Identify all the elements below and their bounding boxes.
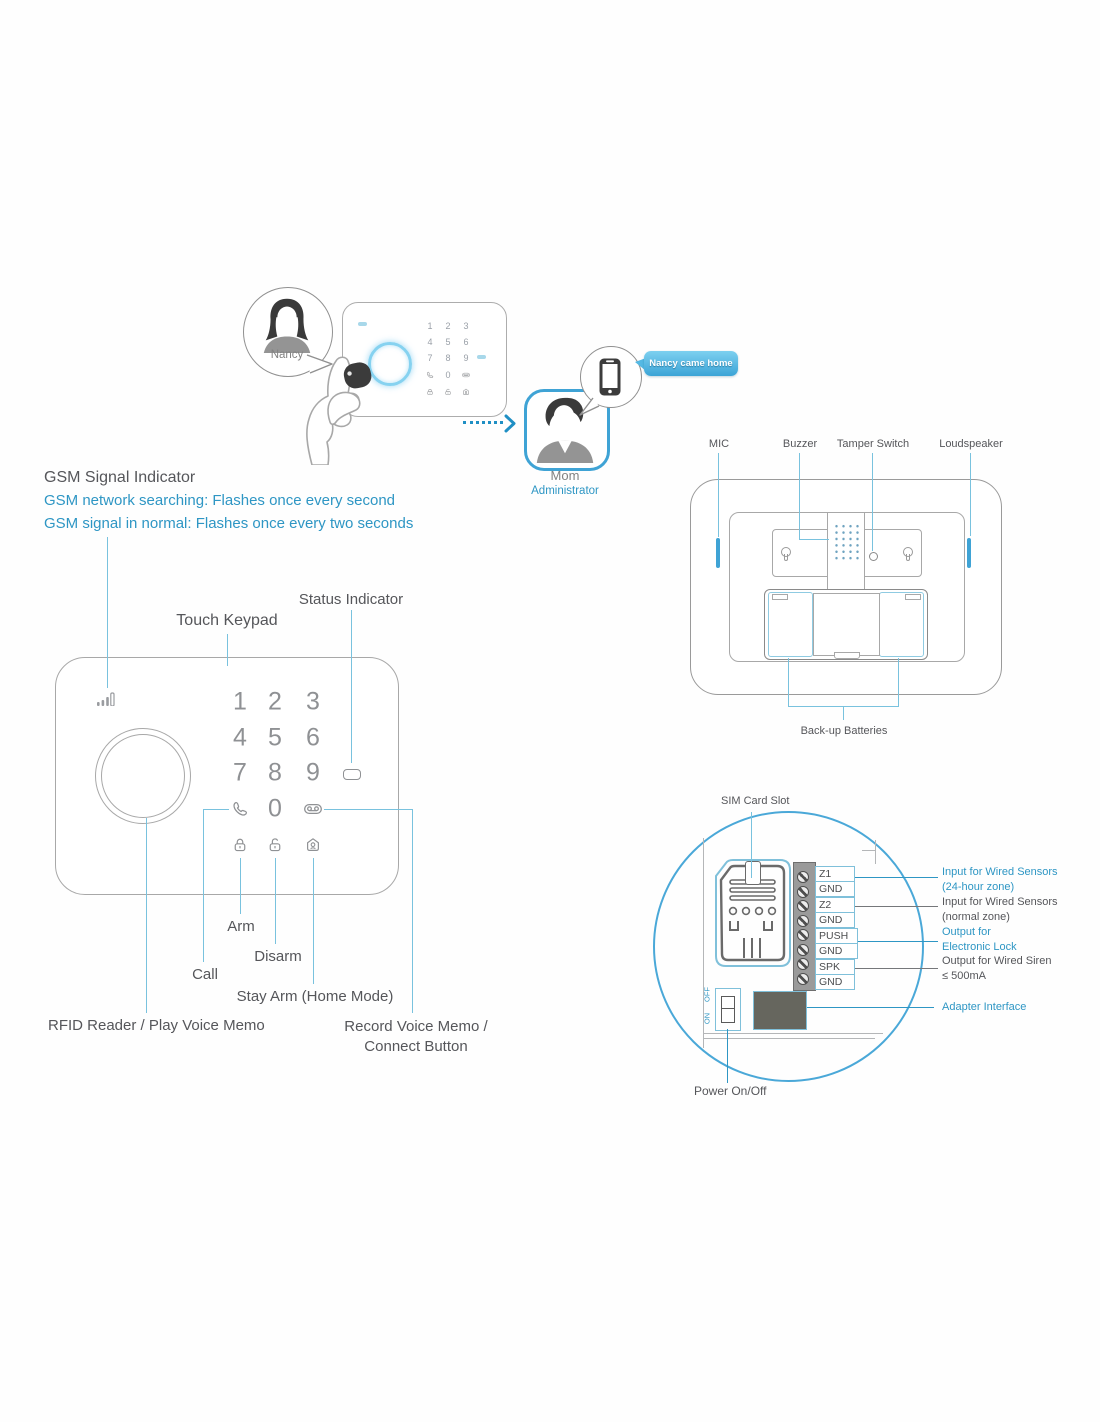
battery-left [768, 592, 813, 657]
annotation-lock-line2: Electronic Lock [942, 941, 1017, 953]
mini-signal-dash [358, 322, 367, 326]
touch-keypad-label: Touch Keypad [176, 612, 277, 630]
stay-key-icon [304, 836, 323, 855]
terminal-z2: Z2 [816, 898, 854, 912]
gsm-normal-note: GSM signal in normal: Flashes once every… [44, 515, 413, 532]
annotation-siren-line1: Output for Wired Siren [942, 955, 1051, 967]
disarm-label: Disarm [254, 948, 302, 965]
arm-key-icon [231, 836, 250, 855]
status-indicator-label: Status Indicator [299, 591, 403, 608]
mom-label: Mom [551, 468, 580, 483]
terminal-screw-5 [797, 929, 809, 941]
battery-center-cover [813, 593, 880, 656]
z2-annotation-line [855, 906, 938, 907]
mini-key-9: 9 [463, 353, 468, 363]
terminal-gnd1: GND [816, 881, 854, 896]
voicemail-key-icon [303, 799, 324, 820]
tamper-connector-line [872, 453, 873, 551]
touch-keypad-connector-line [227, 634, 228, 666]
smartphone-icon [598, 357, 622, 397]
mini-key-7: 7 [427, 353, 432, 363]
arrow-chevron-icon [504, 414, 517, 433]
key-8: 8 [268, 759, 282, 788]
annotation-siren-line2: ≤ 500mA [942, 970, 986, 982]
hand-illustration [290, 330, 395, 465]
record-label-line2: Connect Button [344, 1037, 487, 1057]
buzzer-holes [833, 523, 860, 560]
terminal-push: PUSH [816, 929, 857, 943]
key-5: 5 [268, 724, 282, 753]
terminal-screw-4 [797, 915, 809, 927]
pcb-edge-right-top [875, 840, 876, 864]
sim-connector-line [751, 812, 752, 878]
mini-arm-lock-icon [426, 388, 435, 397]
mini-key-1: 1 [427, 321, 432, 331]
gsm-signal-icon [97, 692, 119, 706]
mini-key-3: 3 [463, 321, 468, 331]
status-led [343, 769, 361, 780]
terminal-screw-7 [797, 958, 809, 970]
annotation-normal-line1: Input for Wired Sensors [942, 896, 1058, 908]
terminal-screw-8 [797, 973, 809, 985]
call-key-icon [230, 799, 250, 819]
mini-status-dash [477, 355, 486, 359]
annotation-lock-line1: Output for [942, 926, 991, 938]
battery-bracket-right [898, 658, 899, 706]
mic-label: MIC [709, 438, 729, 450]
mini-key-2: 2 [445, 321, 450, 331]
mini-key-5: 5 [445, 337, 450, 347]
mini-key-8: 8 [445, 353, 450, 363]
tamper-switch-dot [869, 552, 878, 561]
loudspeaker-label: Loudspeaker [939, 438, 1003, 450]
arm-label: Arm [227, 918, 255, 935]
rfid-reader-inner-ring [101, 734, 185, 818]
mic-slot [716, 538, 720, 568]
phone-bubble-tail [578, 396, 602, 418]
switch-off-label: OFF [703, 985, 712, 1005]
battery-latch [834, 652, 860, 659]
adapter-interface-block [753, 991, 807, 1030]
mini-call-icon [426, 371, 435, 380]
rfid-reader-label: RFID Reader / Play Voice Memo [48, 1017, 265, 1034]
sim-slot-tab [745, 861, 761, 885]
terminal-z1: Z1 [816, 867, 854, 881]
record-label: Record Voice Memo / Connect Button [344, 1017, 487, 1057]
power-connector-line [727, 1029, 728, 1083]
terminal-screw-1 [797, 871, 809, 883]
backup-batteries-label: Back-up Batteries [801, 725, 888, 737]
tamper-switch-label: Tamper Switch [837, 438, 909, 450]
mount-keyhole-left [781, 547, 791, 557]
adapter-annotation-line [807, 1007, 934, 1008]
call-connector-line-h [203, 809, 229, 810]
memo-connector-line-v [412, 809, 413, 1013]
spk-annotation-line [855, 968, 938, 969]
pcb-edge-bottom1 [703, 1033, 883, 1034]
terminal-spk: SPK [816, 960, 854, 974]
status-connector-line [351, 610, 352, 763]
buzzer-label: Buzzer [783, 438, 817, 450]
annotation-24h-line1: Input for Wired Sensors [942, 866, 1058, 878]
battery-tab-left [772, 594, 788, 600]
notification-bubble: Nancy came home [644, 351, 738, 376]
power-switch-knob-divider [722, 1008, 734, 1009]
record-label-line1: Record Voice Memo / [344, 1017, 487, 1037]
memo-connector-line-h [324, 809, 413, 810]
adapter-interface-label: Adapter Interface [942, 1001, 1026, 1013]
mini-key-0: 0 [445, 370, 450, 380]
terminal-screw-6 [797, 944, 809, 956]
switch-on-label: ON [703, 1009, 712, 1029]
key-4: 4 [233, 724, 247, 753]
sim-card-slot-label: SIM Card Slot [721, 795, 789, 807]
terminal-screw-2 [797, 886, 809, 898]
mini-key-6: 6 [463, 337, 468, 347]
arm-connector-line [240, 858, 241, 914]
z1-annotation-line [855, 877, 938, 878]
disarm-connector-line [275, 858, 276, 944]
battery-bracket-left [788, 658, 789, 706]
annotation-24h-line2: (24-hour zone) [942, 881, 1014, 893]
buzzer-connector-line-h [799, 539, 829, 540]
push-annotation-line [858, 941, 938, 942]
pcb-edge-top-right [862, 850, 876, 851]
mini-stay-house-icon [462, 388, 471, 397]
key-7: 7 [233, 759, 247, 788]
key-2: 2 [268, 688, 282, 717]
annotation-normal-line2: (normal zone) [942, 911, 1010, 923]
key-0: 0 [268, 795, 282, 824]
buzzer-connector-line [799, 453, 800, 540]
terminal-gnd4: GND [816, 974, 854, 989]
key-9: 9 [306, 759, 320, 788]
rfid-connector-line [146, 818, 147, 1013]
key-3: 3 [306, 688, 320, 717]
manual-page: Nancy 1 2 3 4 5 6 7 8 9 0 Mom Administra… [0, 0, 1100, 1422]
battery-tab-right [905, 594, 921, 600]
mic-connector-line [718, 453, 719, 537]
mom-role-label: Administrator [531, 485, 599, 497]
terminal-box-push: PUSH GND [815, 928, 858, 959]
call-label: Call [192, 966, 218, 983]
terminal-gnd2: GND [816, 912, 854, 927]
stay-connector-line [313, 858, 314, 984]
battery-right [879, 592, 924, 657]
mini-disarm-lock-icon [444, 388, 453, 397]
terminal-screw-3 [797, 900, 809, 912]
terminal-box-spk: SPK GND [815, 959, 855, 990]
battery-bracket-stem [843, 706, 844, 720]
mount-keyhole-right [903, 547, 913, 557]
key-6: 6 [306, 724, 320, 753]
dotted-arrow [463, 421, 503, 424]
power-on-off-label: Power On/Off [694, 1084, 766, 1098]
mini-key-4: 4 [427, 337, 432, 347]
stay-arm-label: Stay Arm (Home Mode) [237, 988, 394, 1005]
disarm-key-icon [266, 836, 285, 855]
pcb-edge-bottom2 [703, 1038, 875, 1039]
loudspeaker-slot [967, 538, 971, 568]
gsm-searching-note: GSM network searching: Flashes once ever… [44, 492, 395, 509]
call-connector-line-v [203, 809, 204, 962]
loudspeaker-connector-line [970, 453, 971, 536]
gsm-title: GSM Signal Indicator [44, 469, 195, 487]
terminal-box-z2: Z2 GND [815, 897, 855, 928]
notification-text: Nancy came home [644, 351, 738, 376]
gsm-connector-line [107, 537, 108, 688]
mini-voicemail-icon [462, 371, 471, 380]
terminal-box-z1: Z1 GND [815, 866, 855, 897]
power-switch-knob [721, 996, 735, 1023]
key-1: 1 [233, 688, 247, 717]
terminal-gnd3: GND [816, 943, 857, 958]
